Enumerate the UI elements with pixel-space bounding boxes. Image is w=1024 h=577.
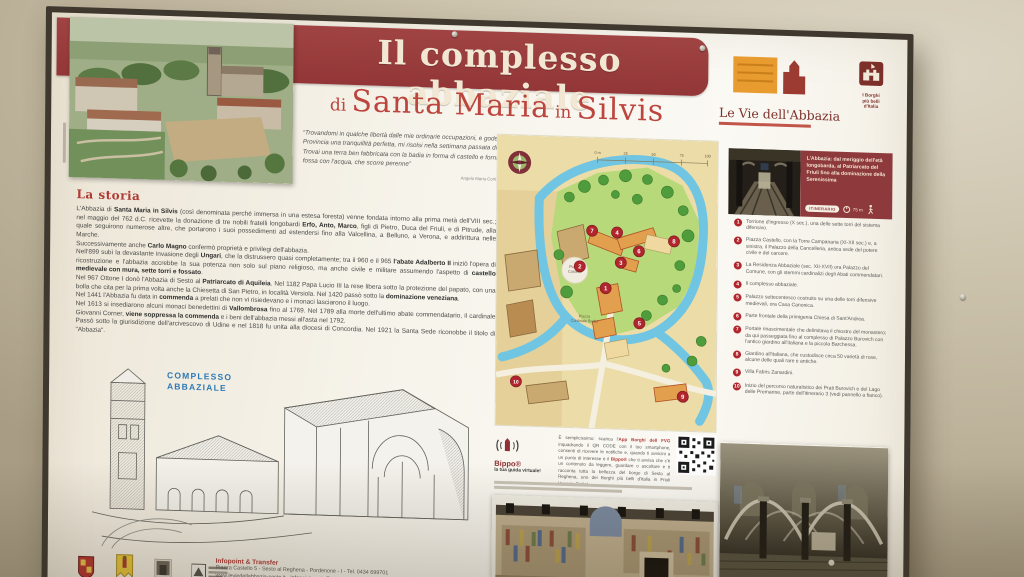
wall-anchor-icon (960, 294, 966, 300)
itinerary-text-box: L'Abbazia: dal meriggio dell'età longoba… (800, 150, 892, 219)
legend-number-badge: 6 (733, 312, 741, 320)
screw-icon (699, 45, 705, 51)
itinerary-duration: 75 m (844, 205, 863, 213)
legend-number-badge: 8 (733, 350, 741, 358)
legend-text: Piazza Castello, con la Torre Campanaria… (746, 237, 890, 261)
legend-number-badge: 5 (733, 294, 741, 302)
legend-item: 7Portale rinascimentale che delimitava i… (733, 325, 889, 349)
itinerary-button: ITINERARIO (805, 204, 840, 212)
legend-item: 1Torrione d'ingresso (X sec.), una delle… (734, 218, 890, 236)
walking-person-icon (867, 205, 874, 215)
screw-icon (452, 31, 458, 37)
footer-logos (77, 551, 229, 577)
legend-number-badge: 9 (733, 369, 741, 377)
itinerary-card: L'Abbazia: dal meriggio dell'età longoba… (728, 148, 892, 219)
legend-item: 3La Residenza Abbaziale (sec. XII-XVII) … (734, 262, 890, 280)
levie-logo-tagline (719, 122, 811, 128)
abbey-etching: COMPLESSOABBAZIALE (72, 359, 493, 563)
svg-text:10: 10 (513, 379, 519, 385)
legend-text: Parte frontale della primigenia Chiesa d… (745, 312, 865, 322)
site-map: 0 m255075100 PiazzaCastelloPiazzaCardina… (496, 135, 718, 432)
bippo-tagline: la tua guida virtuale! (494, 468, 552, 476)
svg-text:0 m: 0 m (595, 151, 601, 155)
legend-number-badge: 10 (733, 382, 741, 390)
svg-text:100: 100 (704, 154, 710, 158)
information-board: Il complesso abbaziale di Santa Maria in… (41, 6, 913, 577)
legend-number-badge: 3 (734, 262, 742, 270)
levie-abbazia-logo: Le Vie dell'Abbazia (719, 52, 840, 129)
municipal-crest-logo (77, 555, 94, 577)
legend-item: 5Palazzo settecentesco costruito su una … (733, 294, 889, 312)
legend-text: Inizio del percorso naturalistico dei Pr… (745, 383, 889, 401)
nave-photo (728, 148, 800, 216)
legend-item: 10Inizio del percorso naturalistico dei … (733, 382, 889, 400)
wall-photo: Il complesso abbaziale di Santa Maria in… (0, 0, 1024, 577)
legend-number-badge: 7 (733, 325, 741, 333)
map-legend: 1Torrione d'ingresso (X sec.), una delle… (733, 218, 890, 400)
legend-item: 8Giardino all'italiana, che custodisce c… (733, 350, 889, 368)
clock-icon (844, 205, 851, 212)
bippo-beacon-icon (494, 437, 520, 455)
photo-stamp-logo (154, 559, 171, 577)
qr-code (676, 435, 716, 476)
legend-item: 6Parte frontale della primigenia Chiesa … (733, 312, 889, 325)
svg-text:75: 75 (680, 154, 684, 158)
photo-credit-strip (63, 123, 66, 163)
legend-text: Palazzo settecentesco costruito su una d… (745, 294, 889, 312)
etching-drawing (72, 359, 491, 563)
aerial-photo (69, 17, 294, 184)
crypt-photo (719, 442, 888, 577)
story-heading: La storia (76, 187, 140, 203)
legend-text: La Residenza Abbaziale (sec. XII-XVII) o… (746, 262, 890, 280)
itinerary-text: L'Abbazia: dal meriggio dell'età longoba… (806, 156, 886, 186)
bippo-text: È semplicissimo: scarica l'App Borghi de… (558, 431, 670, 491)
subtitle-in: in (555, 102, 572, 123)
etching-label: COMPLESSOABBAZIALE (167, 370, 232, 393)
levie-logo-mark (719, 52, 823, 101)
subtitle-santa-maria: Santa Maria (351, 84, 550, 125)
legend-text: Torrione d'ingresso (X sec.), una delle … (746, 219, 890, 237)
legend-text: Villa Fabris Zanardini. (745, 369, 794, 377)
legend-number-badge: 4 (734, 280, 742, 288)
borghi-logo: I Borghipiù bellid'Italia (847, 60, 895, 111)
legend-number-badge: 2 (734, 237, 742, 245)
legend-text: Portale rinascimentale che delimitava il… (745, 326, 889, 350)
borghi-castle-icon (858, 60, 884, 87)
svg-text:25: 25 (624, 152, 628, 156)
legend-text: Giardino all'italiana, che custodisce ci… (745, 351, 889, 369)
svg-text:50: 50 (652, 153, 656, 157)
legend-item: 9Villa Fabris Zanardini. (733, 369, 889, 382)
subtitle-di: di (330, 95, 346, 116)
legend-item: 2Piazza Castello, con la Torre Campanari… (734, 237, 890, 261)
borghi-logo-text: I Borghipiù bellid'Italia (847, 92, 895, 111)
fresco-photo (491, 495, 718, 577)
levie-logo-text: Le Vie dell'Abbazia (719, 105, 839, 124)
legend-item: 4Il complesso abbaziale. (734, 280, 890, 293)
story-text: L'Abbazia di Santa Maria in Silvis (così… (75, 205, 496, 348)
subtitle-silvis: Silvis (576, 91, 664, 129)
legend-number-badge: 1 (734, 218, 742, 226)
legend-text: Il complesso abbaziale. (746, 280, 798, 288)
gonfalone-flag-logo (114, 553, 134, 577)
svg-text:Cardinale Barbo: Cardinale Barbo (571, 319, 598, 324)
